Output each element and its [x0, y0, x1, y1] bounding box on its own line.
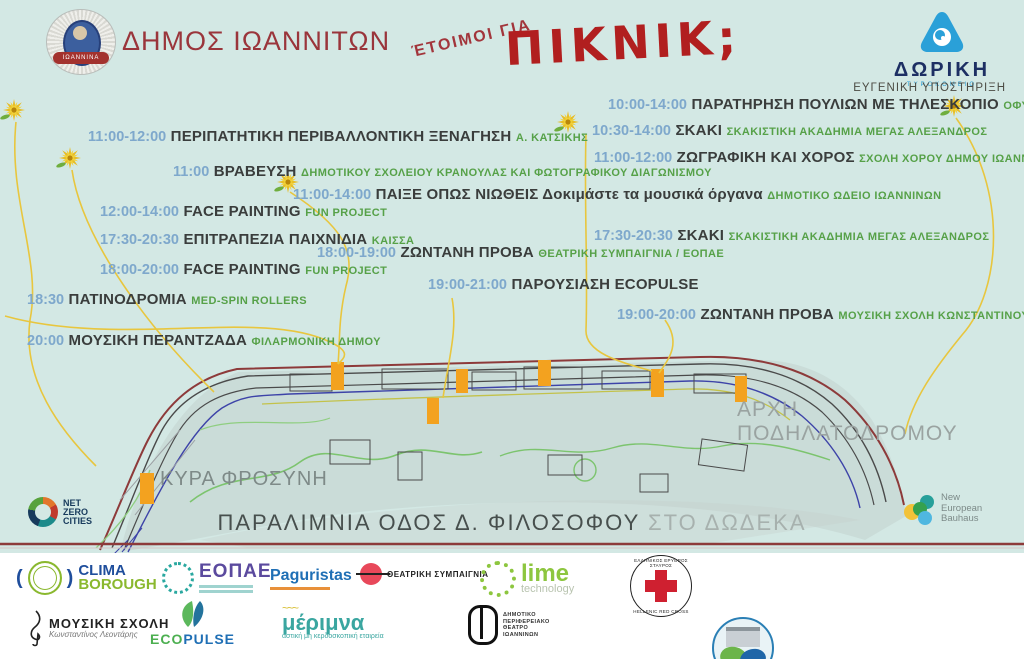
dotted-burst-icon [162, 562, 194, 594]
event-live-rehearsal-1: 18:00-19:00 ΖΩΝΤΑΝΗ ΠΡΟΒΑ ΘΕΑΤΡΙΚΗ ΣΥΜΠΑ… [317, 244, 724, 262]
net-zero-cities-logo: NET ZERO CITIES [28, 497, 92, 527]
leaves-icon [176, 599, 210, 629]
fingerprint-icon [28, 561, 62, 595]
event-chess-morning: 10:30-14:00 ΣΚΑΚΙ ΣΚΑΚΙΣΤΙΚΗ ΑΚΑΔΗΜΙΑ ΜΕ… [592, 122, 987, 140]
logo-paguristas: Paguristas [270, 567, 352, 590]
map-label-bike-path-start: ΑΡΧΗ ΠΟΔΗΛΑΤΟΔΡΟΜΟΥ [737, 398, 1024, 446]
sponsor-logo-strip: ( ) CLIMA BOROUGH ΕΟΠΑΕ Paguristas ΘΕΑΤΡ… [0, 553, 1024, 659]
event-roller-skating: 18:30 ΠΑΤΙΝΟΔΡΟΜΙΑ MED-SPIN ROLLERS [27, 291, 307, 309]
net-zero-ring-icon [28, 497, 58, 527]
event-music-parade: 20:00 ΜΟΥΣΙΚΗ ΠΕΡΑΝΤΖΑΔΑ ΦΙΛΑΡΜΟΝΙΚΗ ΔΗΜ… [27, 332, 381, 350]
map-label-lakeside-road: ΠΑΡΑΛΙΜΝΙΑ ΟΔΟΣ Δ. ΦΙΛΟΣΟΦΟΥ ΣΤΟ ΔΩΔΕΚΑ [0, 510, 1024, 536]
theater-mark-icon [468, 605, 498, 645]
logo-merimna: ~~~ μέριμνα αστική μη κερδοσκοπική εταιρ… [282, 603, 384, 640]
logo-hellenic-red-cross: ΕΛΛΗΝΙΚΟΣ ΕΡΥΘΡΟΣ ΣΤΑΥΡΟΣ HELLENIC RED C… [630, 555, 692, 617]
event-play-instruments: 11:00-14:00 ΠΑΙΞΕ ΟΠΩΣ ΝΙΩΘΕΙΣ Δοκιμάστε… [293, 186, 941, 204]
event-chess-evening: 17:30-20:30 ΣΚΑΚΙ ΣΚΑΚΙΣΤΙΚΗ ΑΚΑΔΗΜΙΑ ΜΕ… [594, 227, 989, 245]
event-painting-dance: 11:00-12:00 ΖΩΓΡΑΦΙΚΗ ΚΑΙ ΧΟΡΟΣ ΣΧΟΛΗ ΧΟ… [594, 149, 1024, 167]
logo-clima-borough: ( ) CLIMA BOROUGH [16, 561, 157, 595]
logo-eopae: ΕΟΠΑΕ [162, 561, 272, 595]
map-label-kyra-frosyni: ΚΥΡΑ ΦΡΟΣΥΝΗ [160, 468, 328, 491]
red-cross-icon [655, 570, 667, 602]
logo-ioannina-youth-council: IOANNINA YOUTH COUNCIL [712, 617, 774, 659]
picnic-poster: ΙΩΑΝΝΙΝΑ ΔΗΜΟΣ ΙΩΑΝΝΙΤΩΝ ΈΤΟΙΜΟΙ ΓΙΑ ΠΙΚ… [0, 0, 1024, 659]
event-bird-watching: 10:00-14:00 ΠΑΡΑΤΗΡΗΣΗ ΠΟΥΛΙΩΝ ΜΕ ΤΗΛΕΣΚ… [608, 96, 1024, 114]
bauhaus-circles-icon [903, 492, 937, 526]
red-dot-icon [360, 563, 382, 585]
event-face-painting-1: 12:00-14:00 FACE PAINTING FUN PROJECT [100, 203, 387, 221]
event-walking-tour: 11:00-12:00 ΠΕΡΙΠΑΤΗΤΙΚΗ ΠΕΡΙΒΑΛΛΟΝΤΙΚΗ … [88, 128, 588, 146]
new-european-bauhaus-logo: New European Bauhaus [903, 492, 982, 526]
building-icon [726, 627, 760, 647]
event-face-painting-2: 18:00-20:00 FACE PAINTING FUN PROJECT [100, 261, 387, 279]
blue-hand-icon [738, 647, 768, 659]
logo-ecopulse: ECOPULSE [150, 599, 235, 649]
event-ecopulse-presentation: 19:00-21:00 ΠΑΡΟΥΣΙΑΣΗ ECOPULSE [428, 276, 699, 294]
logo-mousiki-sxoli: ΜΟΥΣΙΚΗ ΣΧΟΛΗ Κωνσταντίνος Λεοντάρης [28, 609, 169, 647]
logo-theatriki-sympaignia: ΘΕΑΤΡΙΚΗ ΣΥΜΠΑΙΓΝΙΑ [360, 563, 489, 585]
logo-dipethe: ΔΗΜΟΤΙΚΟ ΠΕΡΙΦΕΡΕΙΑΚΟ ΘΕΑΤΡΟ ΙΩΑΝΝΙΝΩΝ [468, 605, 550, 645]
logo-lime-technology: lime technology [480, 561, 574, 597]
event-live-rehearsal-2: 19:00-20:00 ΖΩΝΤΑΝΗ ΠΡΟΒΑ ΜΟΥΣΙΚΗ ΣΧΟΛΗ … [617, 306, 1024, 324]
green-dots-icon [480, 561, 516, 597]
treble-clef-icon [28, 609, 44, 647]
